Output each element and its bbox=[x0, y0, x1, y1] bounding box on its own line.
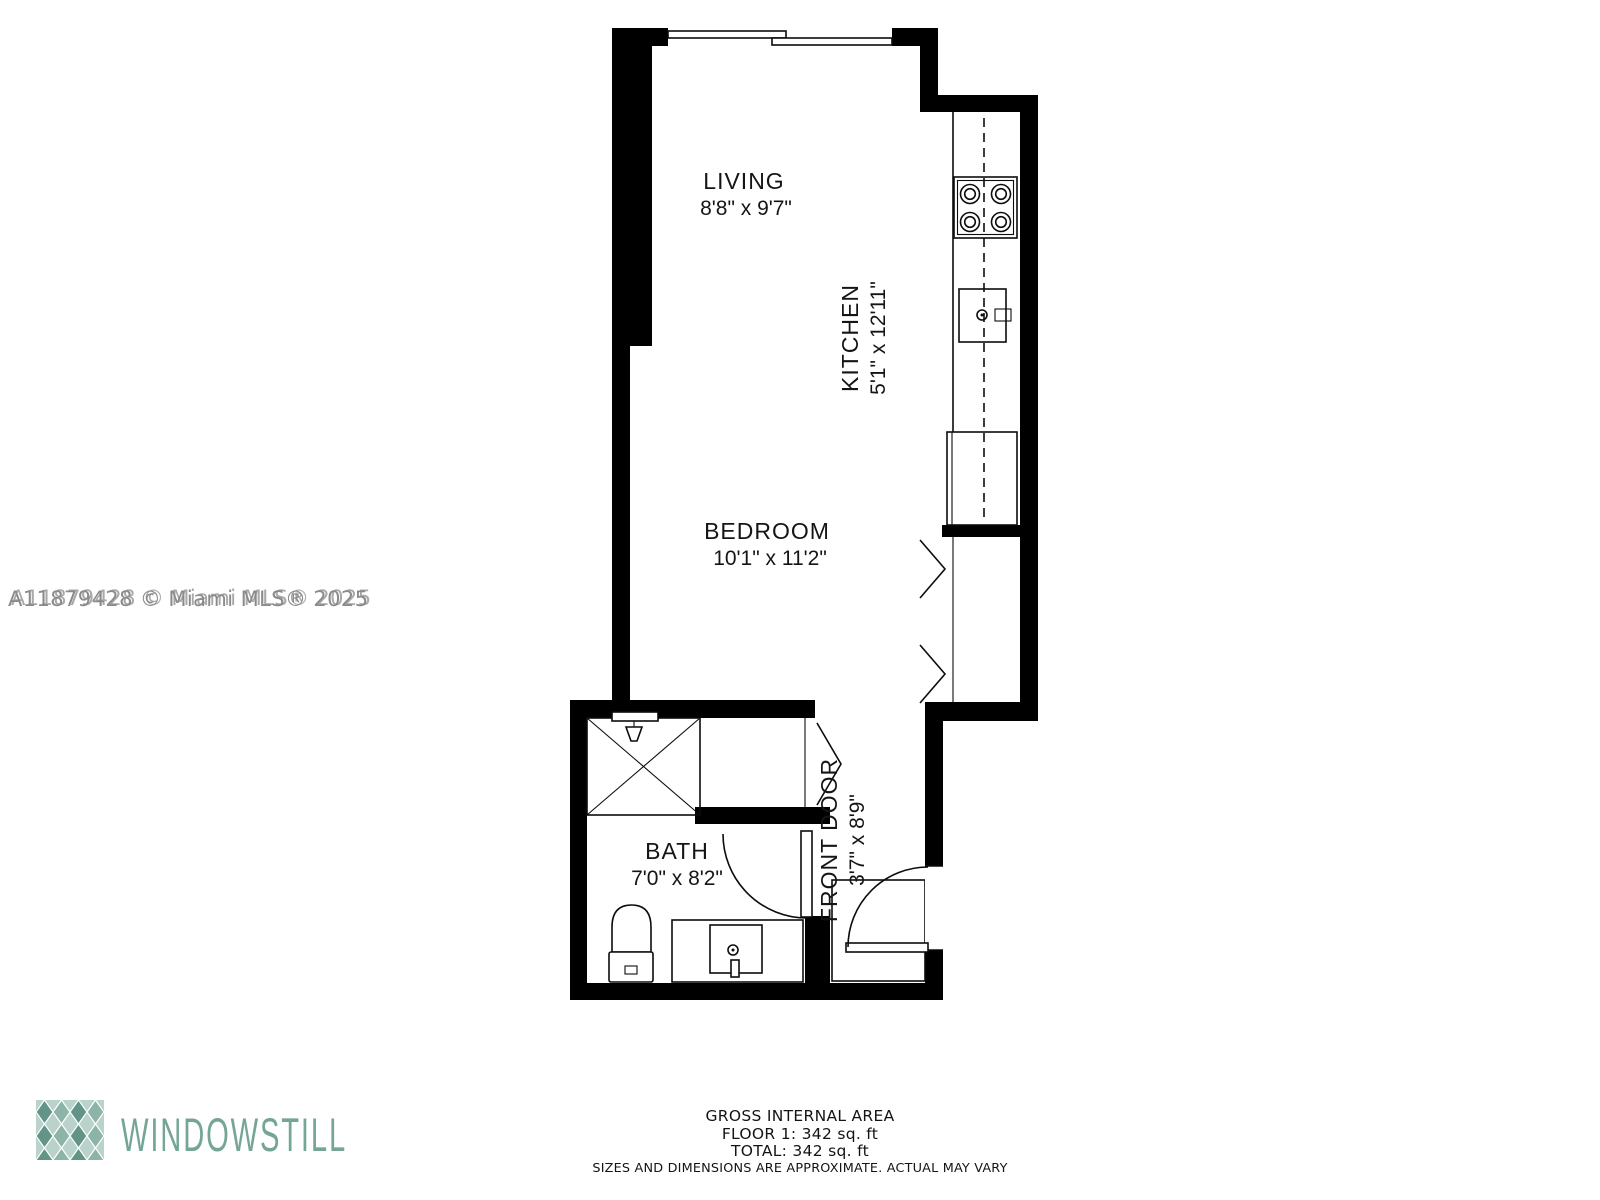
room-label-front-door-group: FRONT DOOR 3'7" x 8'9" bbox=[816, 758, 869, 922]
gross-area-title: GROSS INTERNAL AREA bbox=[705, 1107, 894, 1125]
room-dims-front-door: 3'7" x 8'9" bbox=[846, 794, 869, 886]
total-area-line: TOTAL: 342 sq. ft bbox=[730, 1142, 869, 1160]
room-dims-living: 8'8" x 9'7" bbox=[700, 197, 792, 220]
windowstill-logo: WINDOWSTILL bbox=[36, 1100, 347, 1162]
vanity-sink-symbol bbox=[672, 920, 803, 982]
floor-area-line: FLOOR 1: 342 sq. ft bbox=[722, 1125, 878, 1143]
room-label-bedroom: BEDROOM bbox=[704, 518, 830, 544]
room-dims-bedroom: 10'1" x 11'2" bbox=[713, 547, 827, 570]
mls-watermark: A11879428 © Miami MLS® 2025 bbox=[8, 587, 368, 611]
stove-symbol bbox=[954, 177, 1017, 238]
toilet-symbol bbox=[609, 905, 653, 982]
logo-text: WINDOWSTILL bbox=[121, 1110, 347, 1162]
room-label-kitchen: KITCHEN bbox=[837, 284, 863, 392]
room-label-front-door: FRONT DOOR bbox=[816, 758, 842, 922]
floorplan-page: LIVING 8'8" x 9'7" KITCHEN 5'1" x 12'11"… bbox=[0, 0, 1600, 1200]
room-label-bath: BATH bbox=[645, 838, 709, 864]
area-summary: GROSS INTERNAL AREA FLOOR 1: 342 sq. ft … bbox=[592, 1107, 1007, 1176]
kitchen-sink-symbol bbox=[959, 289, 1011, 342]
room-label-living: LIVING bbox=[703, 168, 784, 194]
window-symbol bbox=[668, 31, 892, 45]
disclaimer-line: SIZES AND DIMENSIONS ARE APPROXIMATE. AC… bbox=[592, 1161, 1007, 1176]
closet-bifold-doors bbox=[920, 540, 945, 703]
room-dims-kitchen: 5'1" x 12'11" bbox=[867, 281, 890, 395]
logo-diamond-icon bbox=[36, 1100, 104, 1160]
shower-symbol bbox=[587, 712, 700, 815]
room-label-kitchen-group: KITCHEN 5'1" x 12'11" bbox=[837, 281, 890, 395]
floor-plan-image: LIVING 8'8" x 9'7" KITCHEN 5'1" x 12'11"… bbox=[0, 0, 1600, 1200]
room-dims-bath: 7'0" x 8'2" bbox=[631, 867, 723, 890]
entry-landing bbox=[832, 880, 925, 981]
bath-door-swing bbox=[723, 831, 812, 918]
